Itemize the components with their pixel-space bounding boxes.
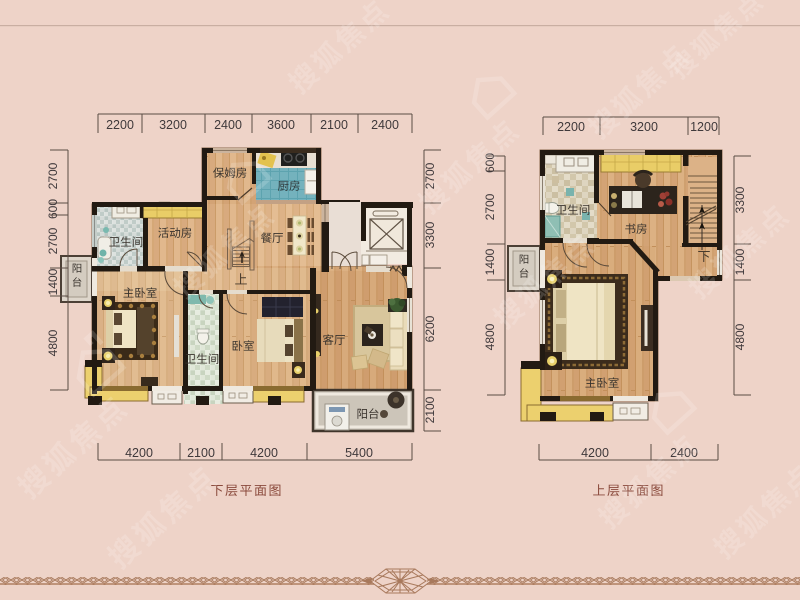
svg-text:3200: 3200 xyxy=(159,118,187,132)
svg-text:2200: 2200 xyxy=(106,118,134,132)
svg-text:2100: 2100 xyxy=(320,118,348,132)
svg-text:2100: 2100 xyxy=(187,446,215,460)
svg-text:5400: 5400 xyxy=(345,446,373,460)
svg-text:1400: 1400 xyxy=(46,268,60,295)
svg-text:2400: 2400 xyxy=(214,118,242,132)
svg-text:3200: 3200 xyxy=(630,120,658,134)
svg-text:4800: 4800 xyxy=(483,323,497,350)
svg-text:6200: 6200 xyxy=(423,315,437,342)
svg-text:2200: 2200 xyxy=(557,120,585,134)
svg-text:2700: 2700 xyxy=(483,193,497,220)
svg-text:1400: 1400 xyxy=(483,248,497,275)
svg-text:4800: 4800 xyxy=(733,323,747,350)
svg-text:2400: 2400 xyxy=(371,118,399,132)
svg-text:4200: 4200 xyxy=(581,446,609,460)
svg-text:2700: 2700 xyxy=(46,162,60,189)
svg-text:4800: 4800 xyxy=(46,329,60,356)
svg-text:4200: 4200 xyxy=(125,446,153,460)
svg-text:1200: 1200 xyxy=(690,120,718,134)
svg-text:3300: 3300 xyxy=(733,186,747,213)
svg-text:4200: 4200 xyxy=(250,446,278,460)
svg-text:2700: 2700 xyxy=(46,227,60,254)
svg-text:3300: 3300 xyxy=(423,221,437,248)
svg-text:3600: 3600 xyxy=(267,118,295,132)
svg-text:600: 600 xyxy=(46,199,60,219)
svg-text:2100: 2100 xyxy=(423,396,437,423)
